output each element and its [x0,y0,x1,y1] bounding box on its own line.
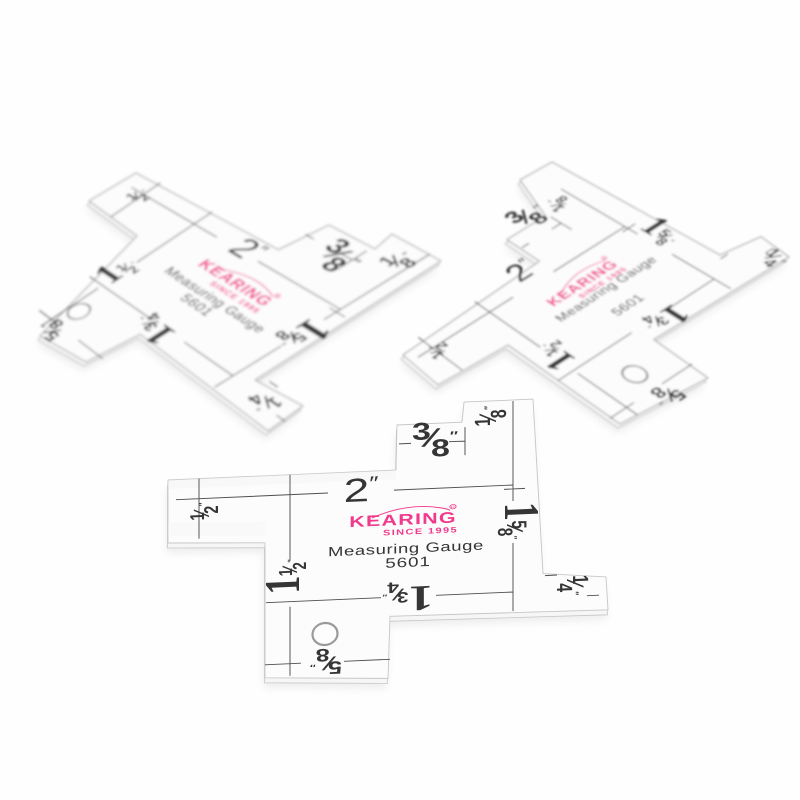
svg-text:5601: 5601 [385,554,430,572]
svg-text:R: R [451,505,456,510]
